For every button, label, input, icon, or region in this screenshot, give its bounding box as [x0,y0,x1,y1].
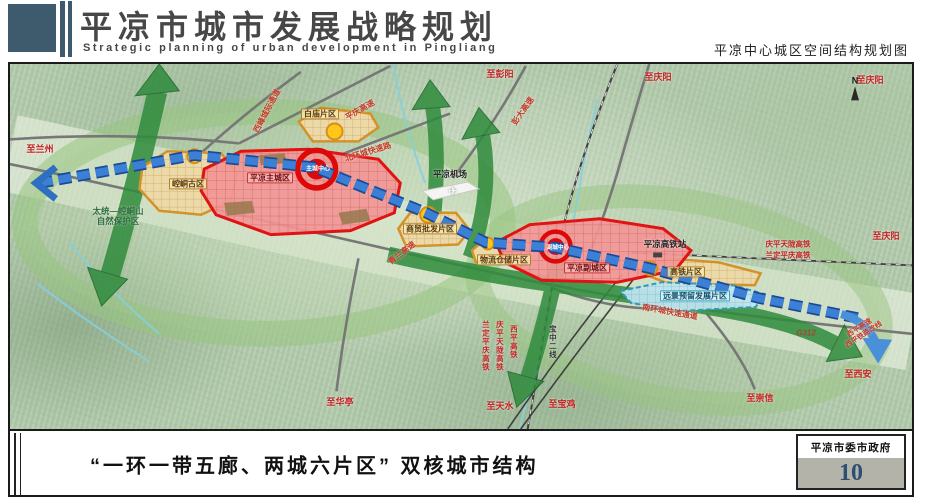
district-label-main-city: 平凉主城区 [247,172,293,183]
page-header: 平凉市城市发展战略规划 Strategic planning of urban … [0,0,925,62]
direction-label: 至庆阳 [856,75,883,85]
core-label-main: 主城中心 [306,167,330,174]
direction-label: 至庆阳 [644,72,671,82]
structure-caption: “一环一带五廊、两城六片区” 双核城市结构 [90,450,539,479]
title-block: 平凉市委市政府 10 [796,434,906,490]
header-accent-square [8,4,56,52]
district-label-trade: 商贸批发片区 [403,223,457,234]
poi-label-airport: 平凉机场 [433,170,467,180]
header-accent-bar [60,1,65,57]
poi-label-hsr-station: 平凉高铁站 [644,240,687,250]
nature-reserve-label: 太统—崆峒山 自然保护区 [92,207,143,227]
direction-label: 至崇信 [746,393,773,403]
planning-document-page: 平凉市城市发展战略规划 Strategic planning of urban … [0,0,925,500]
district-label-kongtong: 崆峒古区 [169,178,207,189]
core-label-sub: 副城中心 [547,245,569,251]
north-label: N [851,75,859,85]
page-footer: “一环一带五廊、两城六片区” 双核城市结构 平凉市委市政府 10 [10,433,912,495]
compass-needle-icon [851,87,859,101]
page-number: 10 [798,458,904,488]
direction-label: 至彭阳 [486,69,513,79]
district-label-hsr: 高铁片区 [667,266,705,277]
rail-label-ldpq-vertical: 兰定平庆高铁 [481,321,490,372]
district-label-baimiao: 白庙片区 [301,108,339,119]
agency-name: 平凉市委市政府 [798,436,904,458]
direction-label: 至华亭 [326,397,353,407]
header-accent-bar [68,1,72,57]
direction-label: 至宝鸡 [548,399,575,409]
rail-label-ldpq: 兰定平庆高铁 [766,252,811,261]
hsr-station-mark [653,252,662,257]
rail-label-qptl: 庆平天陇高铁 [766,241,811,250]
nature-reserve-line2: 自然保护区 [92,217,143,227]
document-frame: 至兰州 至彭阳 至庆阳 至庆阳 至庆阳 至西安 至崇信 至宝鸡 至天水 至华亭 … [8,62,914,497]
direction-label: 至庆阳 [872,231,899,241]
district-label-reserve: 远景预留发展片区 [660,290,730,301]
footer-frame-lines [14,433,21,495]
direction-label: 至兰州 [26,144,53,154]
direction-label: 至天水 [486,401,513,411]
road-label-g312: G312 [796,328,816,337]
north-arrow: N [851,75,859,100]
page-subtitle-en: Strategic planning of urban development … [83,42,498,54]
rail-label-qptl-vertical: 庆平天陇高铁 [495,321,504,372]
planning-map: 至兰州 至彭阳 至庆阳 至庆阳 至庆阳 至西安 至崇信 至宝鸡 至天水 至华亭 … [10,64,912,431]
district-label-sub-city: 平凉副城区 [564,262,610,273]
airplane-icon: ✈ [448,186,457,199]
district-label-logistics: 物流仓储片区 [477,254,531,265]
rail-label-baozhong: 宝中二线 [548,325,557,359]
map-caption: 平凉中心城区空间结构规划图 [714,40,909,59]
rail-label-xiping-hsr: 西平高铁 [509,325,518,359]
direction-label: 至西安 [844,369,871,379]
